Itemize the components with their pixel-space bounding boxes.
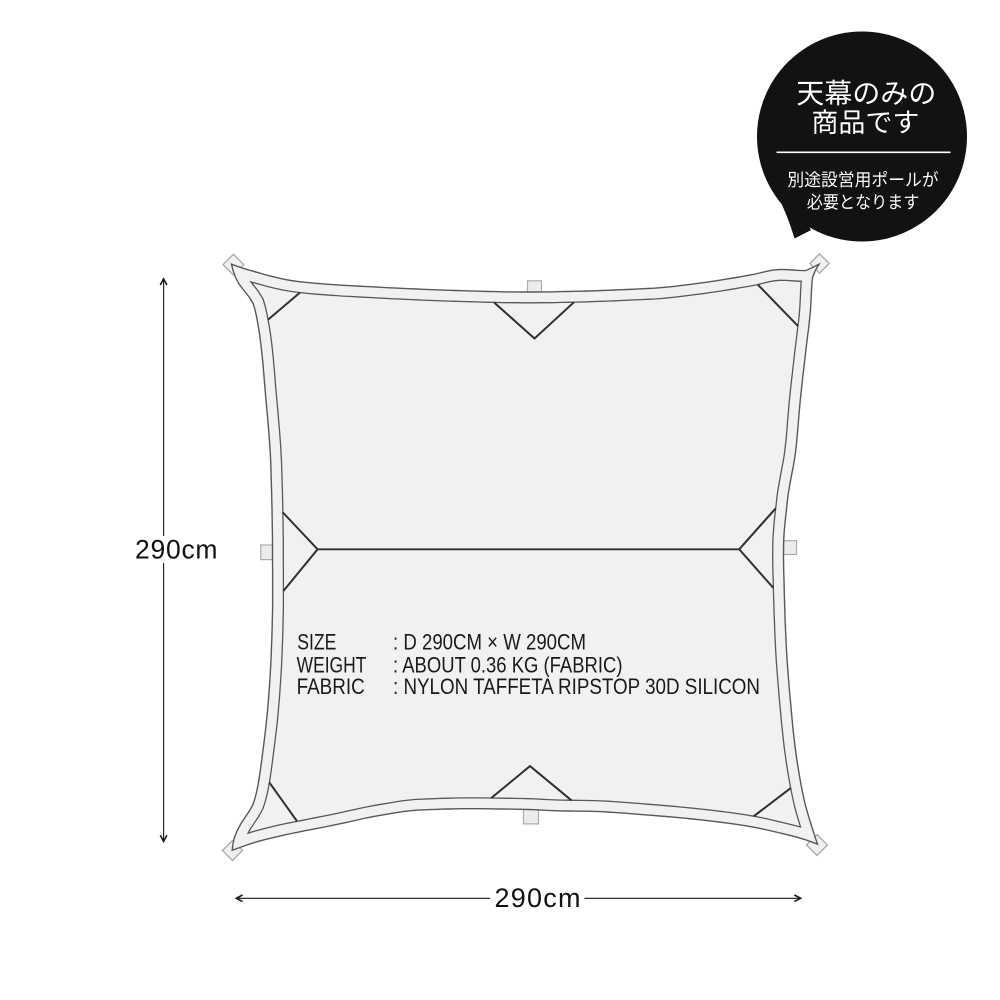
svg-text:SIZE: SIZE xyxy=(297,630,336,655)
svg-text:290cm: 290cm xyxy=(495,883,581,913)
svg-text:: D 290CM × W 290CM: : D 290CM × W 290CM xyxy=(393,630,586,655)
svg-text:: NYLON TAFFETA RIPSTOP 30D SI: : NYLON TAFFETA RIPSTOP 30D SILICON xyxy=(393,674,760,699)
svg-text:FABRIC: FABRIC xyxy=(297,674,365,699)
svg-text:290cm: 290cm xyxy=(135,535,218,565)
